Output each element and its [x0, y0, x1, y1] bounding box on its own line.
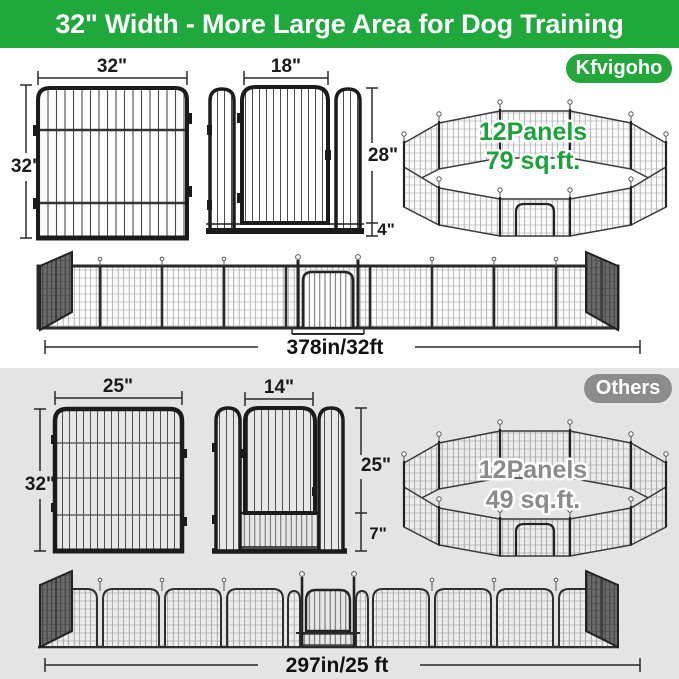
others-door-panel-diagram: 14" 25" 7": [195, 375, 395, 585]
brand-badge: Kfvigoho: [566, 54, 672, 83]
brand-door-panel-diagram: 18" 28" 4": [200, 55, 400, 245]
fence-door-pins: [296, 255, 361, 260]
panel-frame: [55, 409, 182, 551]
side-panel-right: [336, 89, 360, 231]
others-row-length-label: 297in/25 ft: [286, 654, 389, 677]
brand-playpen-area-label: 79 sq.ft.: [486, 147, 580, 175]
side-panel-left: [210, 89, 234, 231]
brand-badge-label: Kfvigoho: [576, 57, 663, 80]
comparison-infographic: 32" Width - More Large Area for Dog Trai…: [0, 0, 679, 679]
brand-playpen-count-label: 12Panels: [479, 118, 587, 146]
side-panel-left: [216, 408, 240, 551]
brand-door-width-label: 18": [271, 56, 301, 77]
banner-title: 32" Width - More Large Area for Dog Trai…: [55, 9, 623, 40]
others-badge: Others: [584, 374, 672, 403]
others-fence-row-illustration: 297in/25 ft: [0, 565, 679, 679]
others-door-height-label: 25": [361, 455, 391, 476]
others-panel-height-label: 32": [25, 474, 55, 495]
panel-frame: [38, 88, 187, 238]
brand-playpen-illustration: 12Panels 79 sq.ft.: [390, 85, 679, 250]
others-playpen-area-label: 49 sq.ft.: [486, 486, 580, 514]
door-panel: [245, 408, 315, 513]
fence-door-pins: [300, 572, 357, 577]
others-playpen-illustration: 12Panels 49 sq.ft.: [390, 405, 679, 570]
brand-row-length-label: 378in/32ft: [287, 336, 384, 359]
brand-fence-row-illustration: 378in/32ft: [0, 250, 679, 360]
others-badge-label: Others: [596, 377, 660, 400]
others-panel-width-label: 25": [103, 376, 133, 397]
others-door-bottom-label: 7": [369, 524, 387, 543]
door-panel: [242, 87, 328, 223]
fence-door: [303, 272, 353, 328]
header-banner: 32" Width - More Large Area for Dog Trai…: [0, 0, 679, 48]
brand-panel-width-label: 32": [97, 56, 127, 77]
door-base-slats: [302, 634, 354, 645]
fence-door: [306, 590, 350, 631]
others-door-width-label: 14": [264, 377, 294, 398]
brand-panel-diagram: 32" 32": [10, 55, 210, 245]
others-playpen-count-label: 12Panels: [479, 456, 587, 484]
others-panel-diagram: 25" 32": [10, 375, 210, 585]
side-panel-right: [319, 408, 343, 551]
